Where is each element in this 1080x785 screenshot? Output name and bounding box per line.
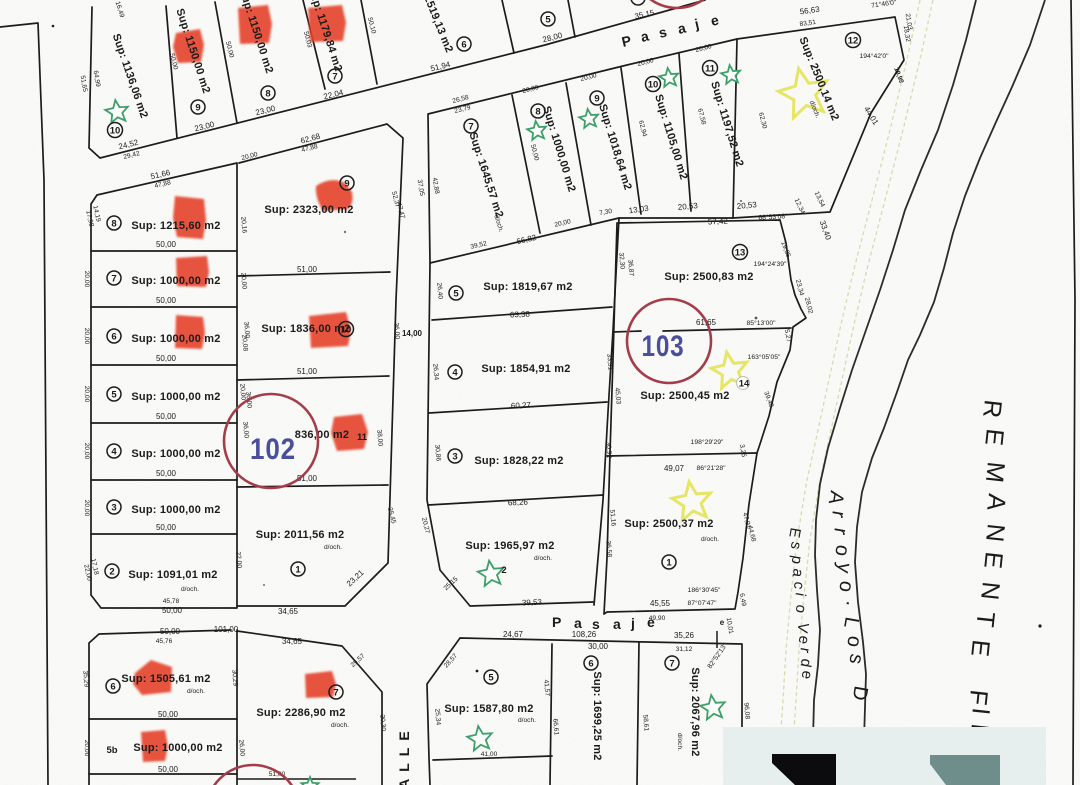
svg-text:194°24'39": 194°24'39" [754, 260, 787, 268]
svg-text:4: 4 [452, 368, 458, 379]
svg-text:Sup: 2286,90 m2: Sup: 2286,90 m2 [256, 707, 345, 719]
svg-text:Sup: 1819,67 m2: Sup: 1819,67 m2 [483, 281, 572, 293]
svg-text:T: T [970, 610, 999, 628]
svg-text:30,00: 30,00 [588, 642, 609, 651]
svg-text:50,00: 50,00 [158, 765, 179, 774]
svg-text:Sup: 1000,00 m2: Sup: 1000,00 m2 [131, 448, 220, 460]
svg-text:d/och.: d/och. [181, 586, 199, 593]
svg-text:36,00: 36,00 [241, 421, 249, 438]
svg-text:186°30'45": 186°30'45" [688, 586, 721, 594]
svg-text:102: 102 [250, 433, 296, 466]
svg-text:26,00: 26,00 [237, 739, 245, 756]
svg-text:60,27: 60,27 [511, 400, 532, 410]
svg-text:Sup: 1000,00 m2: Sup: 1000,00 m2 [131, 333, 220, 345]
svg-text:25,34: 25,34 [433, 708, 441, 725]
svg-text:13: 13 [735, 248, 746, 259]
svg-text:36,00: 36,00 [392, 322, 400, 339]
svg-text:Sup: 1000,00 m2: Sup: 1000,00 m2 [131, 275, 220, 287]
svg-text:6: 6 [588, 659, 593, 670]
svg-text:33,31: 33,31 [605, 353, 613, 370]
svg-text:7: 7 [468, 122, 473, 133]
svg-text:6: 6 [111, 332, 116, 343]
svg-text:Sup: 1000,00 m2: Sup: 1000,00 m2 [131, 504, 220, 516]
svg-text:26,34: 26,34 [431, 363, 439, 380]
svg-text:50,00: 50,00 [162, 606, 183, 615]
svg-text:Sup: 1000,00 m2: Sup: 1000,00 m2 [131, 391, 220, 403]
svg-text:41,57: 41,57 [542, 679, 550, 696]
svg-text:51,00: 51,00 [297, 265, 318, 274]
svg-text:86°21'28": 86°21'28" [696, 464, 726, 472]
svg-text:Sup: 1505,61 m2: Sup: 1505,61 m2 [121, 673, 210, 685]
svg-text:5b: 5b [106, 745, 117, 756]
svg-text:20,00: 20,00 [83, 740, 90, 757]
svg-text:45,76: 45,76 [156, 638, 173, 645]
svg-text:Sup: 1215,60 m2: Sup: 1215,60 m2 [131, 220, 220, 232]
svg-text:45,55: 45,55 [650, 599, 671, 608]
svg-text:14,00: 14,00 [402, 329, 423, 338]
svg-text:20,00: 20,00 [83, 500, 90, 517]
svg-text:M: M [980, 460, 1010, 484]
svg-text:CALLE: CALLE [396, 724, 412, 785]
svg-text:Sup: 1965,97 m2: Sup: 1965,97 m2 [465, 540, 554, 552]
svg-text:8: 8 [535, 107, 540, 118]
svg-text:6: 6 [110, 682, 115, 693]
svg-text:Sup: 1836,00 m2: Sup: 1836,00 m2 [261, 323, 350, 335]
svg-text:2: 2 [109, 567, 114, 578]
svg-text:20,08: 20,08 [240, 334, 248, 351]
svg-text:2: 2 [501, 565, 506, 576]
svg-text:87°07'47": 87°07'47" [687, 599, 717, 607]
svg-text:Sup: 1699,25 m2: Sup: 1699,25 m2 [591, 671, 603, 760]
svg-text:50,00: 50,00 [160, 627, 181, 636]
svg-text:35,26: 35,26 [674, 631, 695, 640]
svg-text:E: E [979, 427, 1009, 447]
svg-text:34,65: 34,65 [282, 637, 303, 646]
svg-text:3: 3 [452, 452, 457, 463]
svg-text:36,87: 36,87 [626, 259, 634, 276]
svg-text:101,00: 101,00 [214, 625, 239, 634]
svg-text:9: 9 [344, 179, 349, 190]
svg-text:7: 7 [111, 274, 116, 285]
svg-text:14: 14 [739, 379, 750, 390]
svg-text:30,92: 30,92 [604, 441, 612, 458]
svg-text:836,00 m2: 836,00 m2 [295, 429, 349, 441]
svg-text:Sup: 2500,83 m2: Sup: 2500,83 m2 [664, 271, 753, 283]
svg-text:d/och.: d/och. [518, 717, 536, 724]
svg-text:20,00: 20,00 [83, 386, 90, 403]
svg-text:12: 12 [848, 36, 859, 47]
svg-text:Sup: 2500,45 m2: Sup: 2500,45 m2 [640, 390, 729, 402]
svg-text:j: j [630, 615, 635, 631]
svg-text:20,00: 20,00 [83, 443, 90, 460]
svg-text:a: a [613, 616, 621, 632]
svg-text:Sup: 1828,22 m2: Sup: 1828,22 m2 [474, 455, 563, 467]
svg-text:39,53: 39,53 [522, 598, 543, 608]
svg-text:20,16: 20,16 [239, 216, 247, 233]
svg-text:51,00: 51,00 [297, 367, 318, 376]
svg-text:50,00: 50,00 [156, 296, 177, 305]
svg-text:P: P [552, 614, 561, 630]
svg-text:51,16: 51,16 [608, 509, 616, 526]
svg-text:26,40: 26,40 [435, 282, 443, 299]
svg-text:31,12: 31,12 [676, 646, 693, 653]
svg-text:E: E [965, 638, 995, 658]
svg-text:50,00: 50,00 [156, 412, 177, 421]
svg-text:96,08: 96,08 [742, 702, 750, 719]
svg-text:1: 1 [295, 565, 301, 576]
svg-text:49,07: 49,07 [664, 464, 685, 473]
svg-text:N: N [975, 580, 1005, 601]
svg-text:20,00: 20,00 [83, 328, 90, 345]
svg-text:d/och.: d/och. [331, 722, 349, 729]
svg-text:50,00: 50,00 [156, 469, 177, 478]
svg-text:E: E [978, 550, 1008, 570]
svg-text:35,29: 35,29 [81, 670, 89, 687]
svg-text:34,65: 34,65 [278, 607, 299, 616]
svg-text:5: 5 [545, 15, 551, 26]
svg-text:163°05'05": 163°05'05" [748, 353, 781, 361]
svg-text:24,67: 24,67 [503, 630, 524, 639]
svg-text:R: R [977, 398, 1007, 419]
svg-text:9: 9 [195, 103, 200, 114]
svg-text:Sup: 1091,01 m2: Sup: 1091,01 m2 [128, 569, 217, 581]
svg-text:36,58: 36,58 [604, 540, 612, 557]
svg-text:63,38: 63,38 [510, 309, 531, 319]
svg-text:4: 4 [111, 447, 117, 458]
svg-text:5: 5 [488, 673, 494, 684]
svg-text:20,53: 20,53 [677, 201, 698, 212]
svg-text:Sup: 1854,91 m2: Sup: 1854,91 m2 [481, 363, 570, 375]
svg-text:103: 103 [642, 330, 685, 363]
svg-text:85°13'00": 85°13'00" [746, 319, 776, 327]
svg-text:Sup: 2011,56 m2: Sup: 2011,56 m2 [256, 529, 345, 541]
svg-text:A: A [981, 492, 1011, 512]
svg-text:6: 6 [461, 40, 466, 51]
svg-text:50,00: 50,00 [156, 523, 177, 532]
svg-text:194°42'0": 194°42'0" [859, 52, 889, 60]
svg-text:10: 10 [110, 126, 121, 137]
svg-text:38,00: 38,00 [375, 429, 383, 446]
svg-text:5: 5 [111, 390, 117, 401]
svg-text:3: 3 [111, 503, 116, 514]
svg-text:20,53: 20,53 [736, 200, 757, 211]
svg-text:N: N [980, 522, 1010, 543]
svg-text:32,30: 32,30 [617, 252, 625, 269]
svg-text:1: 1 [666, 558, 672, 569]
svg-text:66,61: 66,61 [551, 718, 559, 735]
svg-text:61,65: 61,65 [696, 318, 717, 327]
svg-text:45,03: 45,03 [613, 387, 621, 404]
svg-text:d/och.: d/och. [534, 555, 552, 562]
svg-text:d/och.: d/och. [324, 544, 342, 551]
svg-text:5: 5 [453, 289, 459, 300]
svg-text:d/och.: d/och. [701, 536, 719, 543]
svg-text:11: 11 [705, 64, 716, 75]
svg-text:50,00: 50,00 [156, 354, 177, 363]
svg-text:Sup: 2500,37 m2: Sup: 2500,37 m2 [624, 518, 713, 530]
svg-text:45,78: 45,78 [163, 598, 180, 605]
svg-text:20,00: 20,00 [83, 271, 90, 288]
svg-text:Sup: 1000,00 m2: Sup: 1000,00 m2 [133, 742, 222, 754]
svg-text:Sup: 2323,00 m2: Sup: 2323,00 m2 [264, 204, 353, 216]
svg-text:7: 7 [332, 72, 337, 83]
svg-text:e: e [647, 614, 655, 630]
svg-text:68,26: 68,26 [508, 498, 529, 508]
svg-text:F: F [963, 688, 992, 706]
svg-text:58,61: 58,61 [641, 714, 649, 731]
svg-text:30,30: 30,30 [378, 714, 386, 731]
svg-text:108,26: 108,26 [572, 630, 597, 639]
svg-text:8: 8 [265, 89, 270, 100]
svg-text:d/och.: d/och. [676, 733, 683, 751]
svg-text:Sup: 1587,80 m2: Sup: 1587,80 m2 [444, 703, 533, 715]
svg-text:22,00: 22,00 [234, 551, 242, 568]
svg-text:7: 7 [669, 659, 674, 670]
svg-text:8: 8 [111, 219, 116, 230]
svg-text:198°29'29": 198°29'29" [691, 438, 724, 446]
svg-text:41,00: 41,00 [481, 751, 498, 758]
svg-text:50,00: 50,00 [158, 710, 179, 719]
svg-text:11: 11 [357, 432, 368, 443]
svg-text:e: e [720, 618, 725, 627]
svg-text:30,29: 30,29 [230, 669, 238, 686]
svg-text:9: 9 [594, 94, 599, 105]
svg-text:10: 10 [648, 80, 659, 91]
svg-text:30,86: 30,86 [433, 444, 441, 461]
svg-text:a: a [574, 615, 582, 631]
svg-text:50,00: 50,00 [156, 240, 177, 249]
svg-text:Sup: 2067,96 m2: Sup: 2067,96 m2 [689, 667, 701, 756]
svg-text:7: 7 [333, 688, 338, 699]
svg-text:d/och.: d/och. [187, 688, 205, 695]
